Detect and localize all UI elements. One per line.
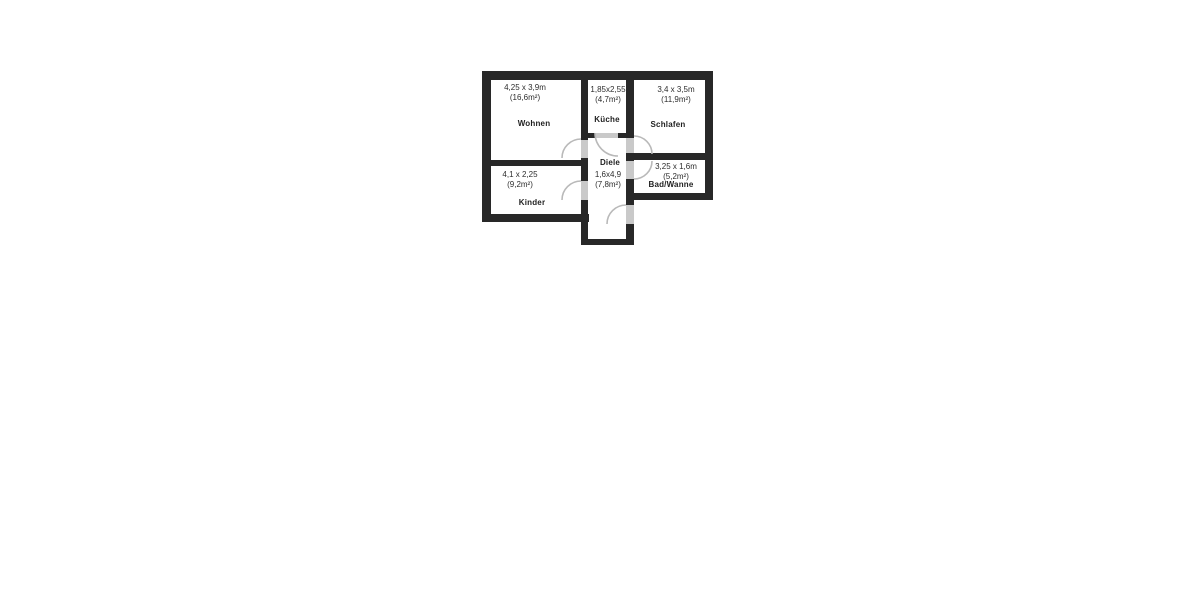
wall-central-left-mid — [581, 158, 588, 181]
room-label-diele: 1,6x4,9 (7,8m²) — [595, 170, 621, 189]
door-leaf-wohnen — [581, 140, 588, 158]
door-arc-entrance — [607, 205, 626, 224]
door-leaf-schlafen — [626, 137, 634, 154]
floor-plan: 4,25 x 3,9m (16,6m²) Wohnen 1,85x2,55 (4… — [0, 0, 1200, 600]
wall-central-right-upper — [626, 79, 634, 137]
room-dimensions: 3,4 x 3,5m — [657, 85, 694, 95]
wall-corridor-bottom — [581, 239, 634, 245]
room-label-wohnen: 4,25 x 3,9m (16,6m²) — [504, 83, 546, 102]
door-leaf-kueche — [595, 133, 618, 138]
door-arc-kinder — [562, 181, 581, 200]
wall-schlafen-bad — [626, 153, 713, 160]
wall-central-left-upper — [581, 79, 588, 140]
room-name-wohnen: Wohnen — [518, 119, 551, 129]
room-label-kueche: 1,85x2,55 (4,7m²) — [590, 85, 625, 104]
room-dimensions: 4,1 x 2,25 — [502, 170, 537, 180]
room-dimensions: 3,25 x 1,6m — [655, 162, 697, 172]
room-area: (11,9m²) — [657, 95, 694, 105]
room-area: (7,8m²) — [595, 180, 621, 190]
room-name-bad: Bad/Wanne — [648, 180, 693, 190]
room-area: (4,7m²) — [590, 95, 625, 105]
room-dimensions: 4,25 x 3,9m — [504, 83, 546, 93]
door-leaf-bad — [626, 161, 634, 179]
wall-kueche-bottom-left — [581, 133, 595, 138]
room-area: (9,2m²) — [502, 180, 537, 190]
wall-kinder-bottom — [482, 214, 589, 222]
wall-outer-top — [482, 71, 713, 80]
room-label-kinder: 4,1 x 2,25 (9,2m²) — [502, 170, 537, 189]
door-leaf-kinder — [581, 181, 588, 200]
door-arc-wohnen — [562, 139, 581, 158]
room-dimensions: 1,85x2,55 — [590, 85, 625, 95]
room-dimensions: 1,6x4,9 — [595, 170, 621, 180]
door-arc-schlafen — [634, 136, 652, 154]
wall-bad-bottom — [626, 193, 713, 200]
room-name-kueche: Küche — [594, 115, 619, 125]
wall-wohnen-kinder — [482, 160, 588, 166]
room-label-bad: 3,25 x 1,6m (5,2m²) — [655, 162, 697, 181]
room-name-kinder: Kinder — [519, 198, 546, 208]
room-label-schlafen: 3,4 x 3,5m (11,9m²) — [657, 85, 694, 104]
wall-outer-right — [705, 71, 713, 200]
room-name-diele: Diele — [600, 158, 620, 168]
wall-kueche-bottom-right — [618, 133, 634, 138]
room-area: (16,6m²) — [504, 93, 546, 103]
door-arc-bad — [634, 161, 652, 179]
wall-central-right-mid2 — [626, 179, 634, 205]
room-name-schlafen: Schlafen — [651, 120, 686, 130]
wall-outer-left — [482, 71, 491, 222]
door-leaf-entrance — [626, 205, 634, 224]
